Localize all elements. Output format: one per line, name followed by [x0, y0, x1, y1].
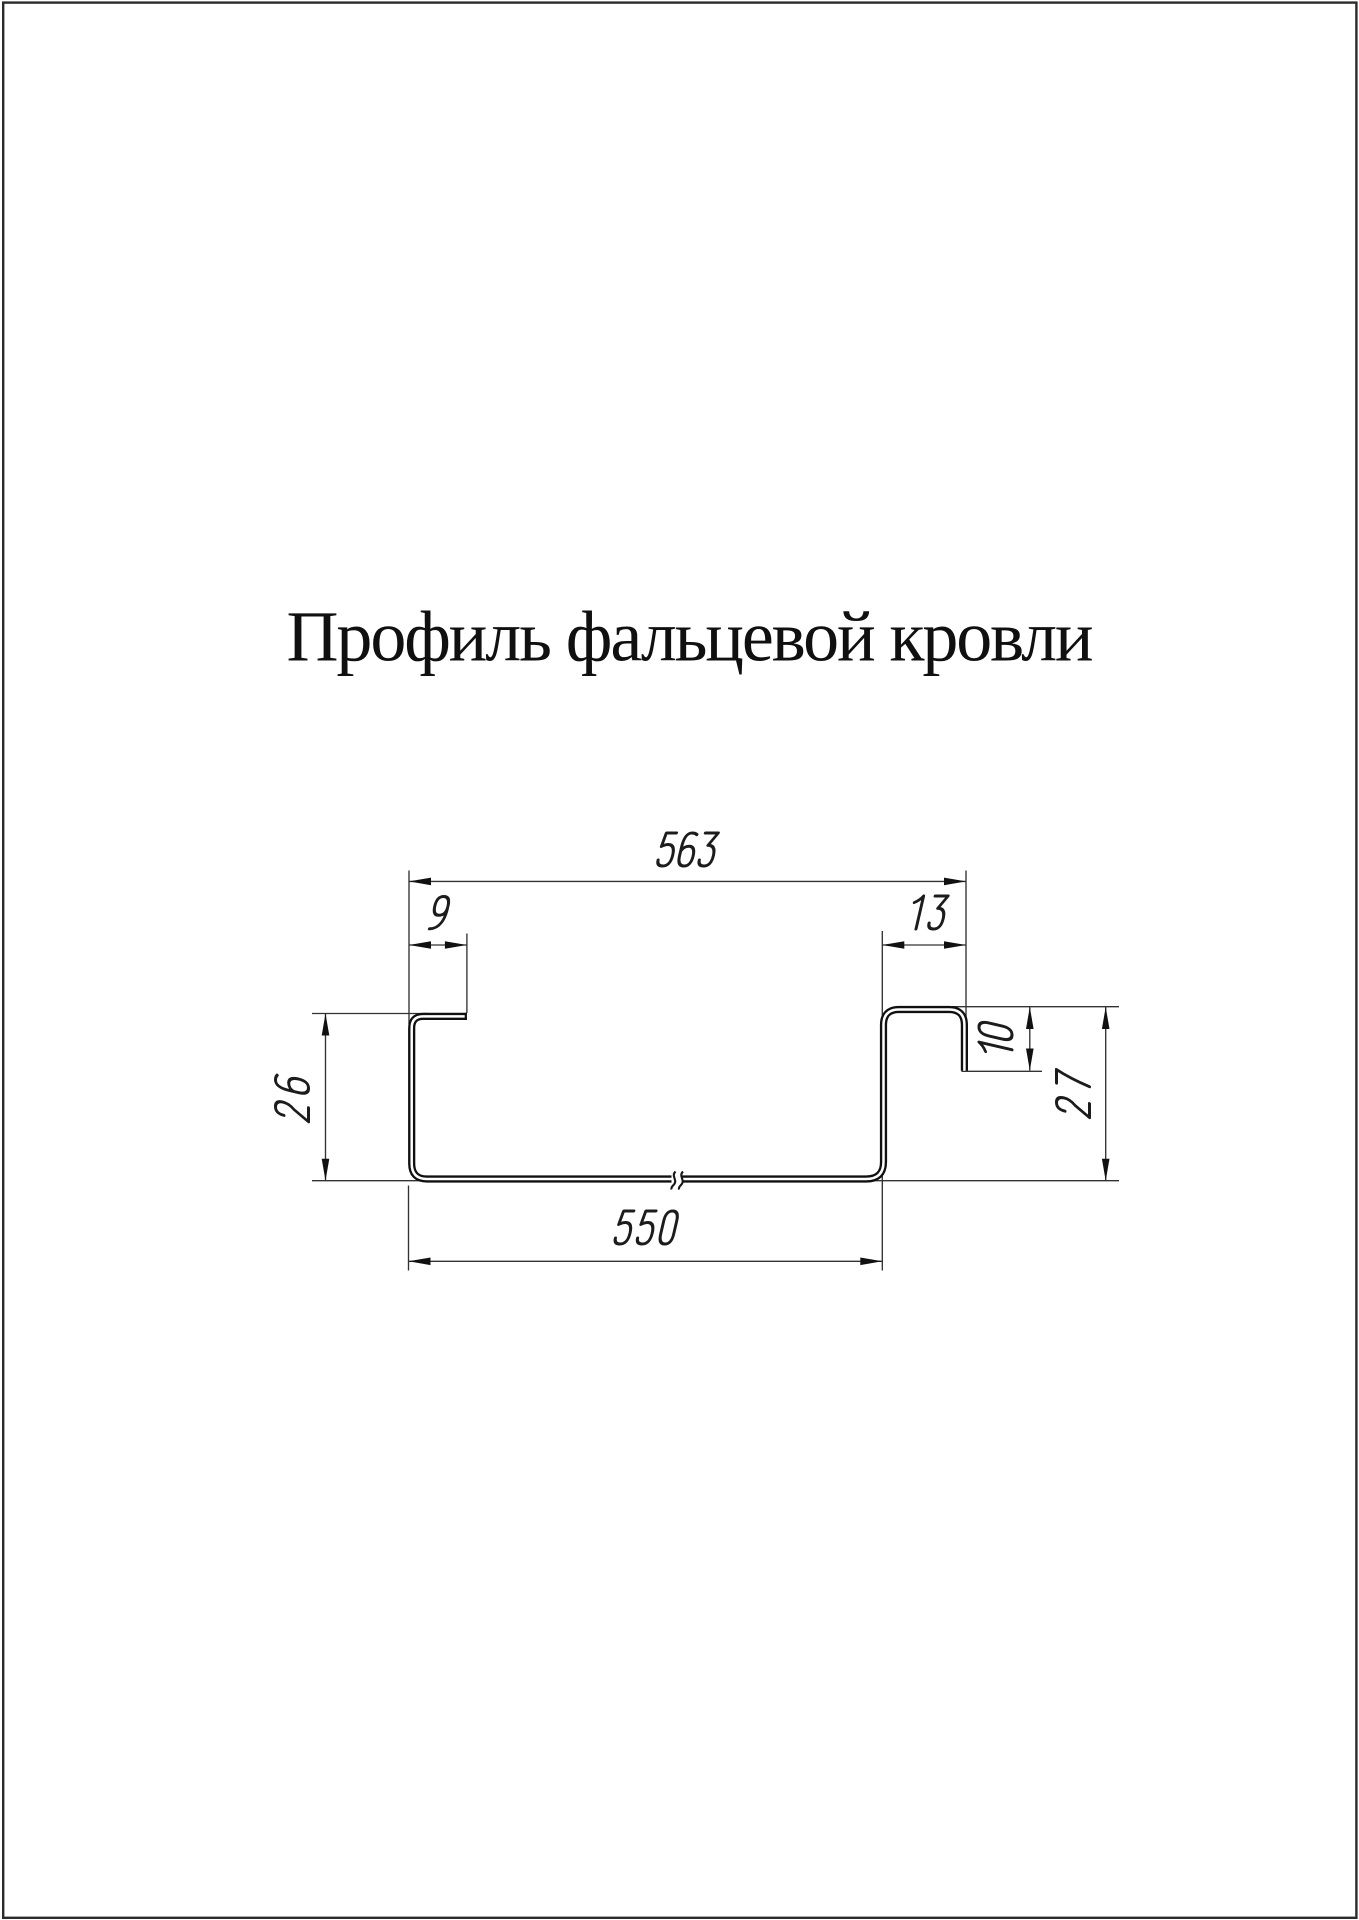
- svg-text:Профиль фальцевой кровли: Профиль фальцевой кровли: [287, 597, 1094, 677]
